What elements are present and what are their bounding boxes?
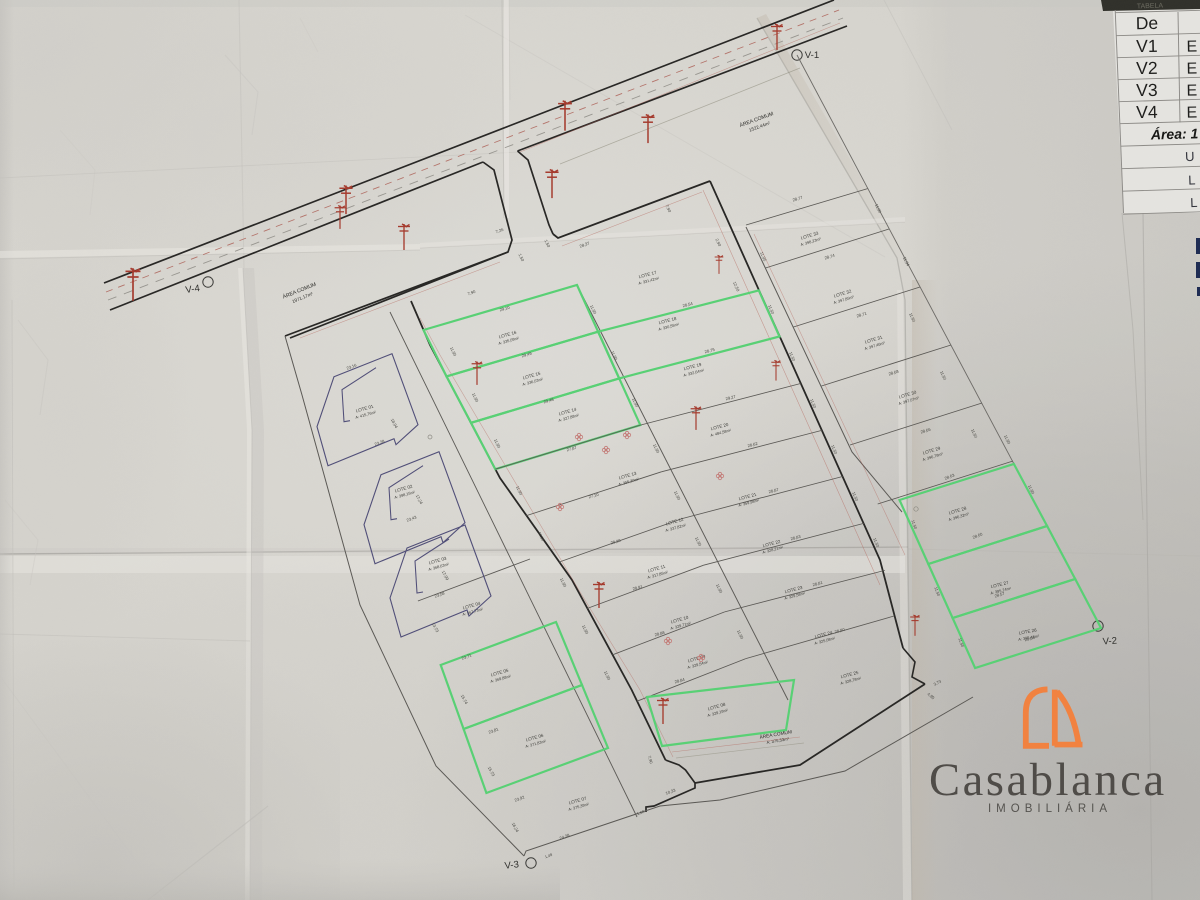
svg-text:U: U bbox=[1185, 149, 1195, 164]
svg-text:V-1: V-1 bbox=[805, 50, 819, 61]
svg-text:Área: 1: Área: 1 bbox=[1150, 125, 1199, 142]
svg-text:De: De bbox=[1136, 13, 1159, 33]
svg-text:E: E bbox=[1186, 104, 1197, 121]
svg-text:L: L bbox=[1188, 172, 1196, 187]
svg-text:V-3: V-3 bbox=[504, 859, 519, 871]
svg-text:V-4: V-4 bbox=[185, 283, 201, 296]
svg-text:V2: V2 bbox=[1136, 58, 1158, 78]
svg-text:Casablanca: Casablanca bbox=[929, 755, 1167, 806]
svg-text:V-2: V-2 bbox=[1102, 636, 1117, 648]
svg-text:E: E bbox=[1186, 82, 1197, 99]
svg-text:E: E bbox=[1186, 60, 1197, 77]
svg-text:V3: V3 bbox=[1136, 80, 1158, 100]
svg-text:E: E bbox=[1186, 38, 1197, 55]
svg-text:V1: V1 bbox=[1136, 36, 1158, 56]
svg-text:TABELA: TABELA bbox=[1137, 3, 1164, 11]
svg-text:IMOBILIÁRIA: IMOBILIÁRIA bbox=[988, 802, 1112, 815]
svg-text:L: L bbox=[1190, 195, 1198, 210]
svg-text:V4: V4 bbox=[1136, 102, 1158, 122]
